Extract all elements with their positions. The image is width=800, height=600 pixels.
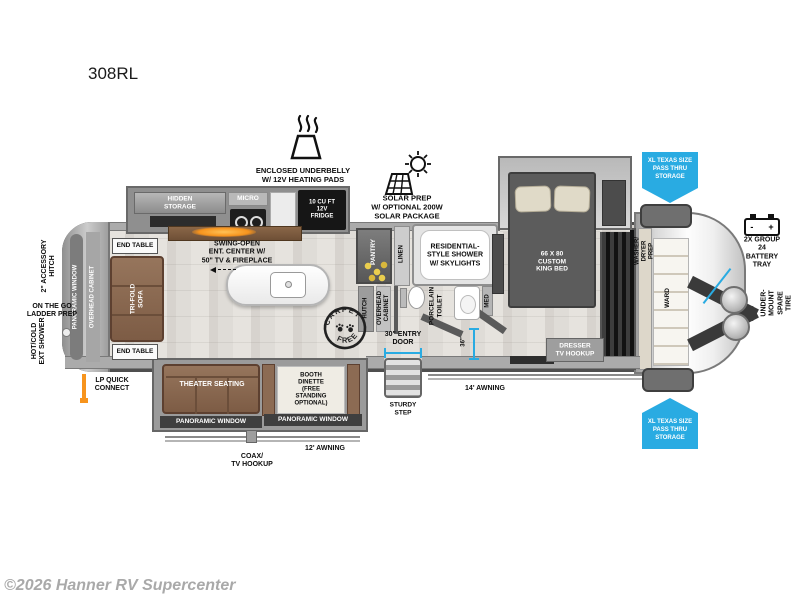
swing-arrow-line xyxy=(218,269,236,270)
door-width-dimension-line xyxy=(473,328,475,360)
louvered-wardrobe xyxy=(600,228,636,370)
swing-arrow-head xyxy=(210,267,216,273)
awning-14-line xyxy=(428,378,654,380)
pass-thru-door-top xyxy=(640,204,692,228)
entry-door-label: 30" ENTRY DOOR xyxy=(385,331,422,348)
underbelly-label: ENCLOSED UNDERBELLY W/ 12V HEATING PADS xyxy=(256,167,350,185)
battery-tray-label: 2X GROUP 24 BATTERY TRAY xyxy=(743,237,781,270)
dinette-bench xyxy=(262,364,275,416)
solar-prep-label: SOLAR PREP W/ OPTIONAL 200W SOLAR PACKAG… xyxy=(371,195,443,222)
sofa-seam xyxy=(112,314,162,316)
toilet-icon xyxy=(408,286,425,309)
wall-segment xyxy=(366,356,384,369)
end-table-top-label: END TABLE xyxy=(117,242,154,250)
pass-thru-callout-bottom: XL TEXAS SIZE PASS THRU STORAGE xyxy=(642,398,698,449)
pillow-icon xyxy=(515,185,552,212)
spare-tire-icon xyxy=(722,313,750,341)
pass-thru-callout-top-box: XL TEXAS SIZE PASS THRU STORAGE xyxy=(642,152,698,188)
bath-vanity xyxy=(454,286,480,320)
battery-terminal-icon xyxy=(750,214,756,218)
lp-quick-connect-label: LP QUICK CONNECT xyxy=(95,377,130,394)
awning-12-label: 12' AWNING xyxy=(305,445,345,453)
faucet-icon xyxy=(285,281,292,288)
awning-14-label: 14' AWNING xyxy=(465,385,505,393)
awning-14-line xyxy=(428,374,654,376)
pantry-label: PANTRY xyxy=(370,239,378,265)
microwave-label: MICRO xyxy=(237,195,259,203)
king-bed-label: 66 X 80 CUSTOM KING BED xyxy=(536,251,568,274)
rear-cabinet-label: OVERHEAD CABINET xyxy=(89,266,96,328)
ext-shower-port-icon xyxy=(62,328,71,337)
ext-shower-label: HOT/COLD EXT SHOWER xyxy=(31,317,48,364)
bath-wall xyxy=(394,286,398,334)
accessory-hitch-label: 2" ACCESSORY HITCH xyxy=(41,240,58,293)
arrow-down-icon xyxy=(642,188,698,203)
dresser-label: DRESSER TV HOOKUP xyxy=(556,342,595,357)
toilet-label: PORCELAIN TOILET xyxy=(428,287,443,325)
ward-label: WARD xyxy=(664,288,672,308)
entertainment-center-label: SWING-OPEN ENT. CENTER W/ 50" TV & FIREP… xyxy=(202,241,273,266)
pass-thru-bottom-label: XL TEXAS SIZE PASS THRU STORAGE xyxy=(648,419,692,442)
spare-tire-label: UNDER-MOUNT SPARE TIRE xyxy=(761,289,794,316)
seat-seam xyxy=(166,376,258,378)
lp-quick-connect-tip xyxy=(80,398,88,403)
dinette-bench xyxy=(347,364,360,416)
battery-icon: - + xyxy=(744,218,780,236)
dimension-tick xyxy=(469,358,479,360)
linen-label: LINEN xyxy=(398,245,405,263)
heating-pads-icon xyxy=(272,112,332,162)
awning-12-line xyxy=(165,436,360,438)
floorplan-canvas: 308RL ENCLOSED UNDERBELLY W/ 12V HEATING… xyxy=(0,0,800,600)
watermark: ©2026 Hanner RV Supercenter xyxy=(4,577,235,595)
swing-arrow-icon xyxy=(210,266,236,273)
entry-steps-icon xyxy=(384,358,422,398)
sofa-label: TRI-FOLD SOFA xyxy=(129,284,144,314)
sturdy-step-label: STURDY STEP xyxy=(390,401,417,416)
dimension-tick xyxy=(384,348,386,358)
rear-window-label: PANORAMIC WINDOW xyxy=(72,265,79,330)
toilet-tank xyxy=(400,288,407,308)
hutch-label: HUTCH xyxy=(362,298,369,319)
bedroom-window-right xyxy=(602,180,626,226)
battery-terminal-icon xyxy=(768,214,774,218)
theater-seating-label: THEATER SEATING xyxy=(179,381,244,389)
pass-thru-callout-bottom-box: XL TEXAS SIZE PASS THRU STORAGE xyxy=(642,413,698,449)
slide-window-right-label: PANORAMIC WINDOW xyxy=(278,416,348,424)
dinette-label: BOOTH DINETTE (FREE STANDING OPTIONAL) xyxy=(295,372,328,407)
dimension-tick xyxy=(420,348,422,358)
fridge-label: 10 CU FT 12V FRIDGE xyxy=(309,199,335,220)
entry-door-dimension-line xyxy=(384,352,422,354)
coax-label: COAX/ TV HOOKUP xyxy=(231,453,273,470)
shower-label: RESIDENTIAL- STYLE SHOWER W/ SKYLIGHTS xyxy=(427,244,483,269)
fireplace-glow-icon xyxy=(192,227,256,237)
pass-thru-door-bottom xyxy=(642,368,694,392)
pillow-icon xyxy=(554,185,591,212)
med-cabinet-label: MED xyxy=(484,294,491,307)
end-table-bottom-label: END TABLE xyxy=(117,348,154,356)
pass-thru-callout-top: XL TEXAS SIZE PASS THRU STORAGE xyxy=(642,152,698,203)
lp-quick-connect-icon xyxy=(82,374,86,398)
coax-hookup-icon xyxy=(246,430,257,443)
door-width-label: 36" xyxy=(460,337,467,347)
dimension-tick xyxy=(469,328,479,330)
washer-dryer-label: WASHER/ DRYER PREP xyxy=(634,237,655,265)
solar-prep-icon xyxy=(378,150,432,198)
page-title: 308RL xyxy=(88,64,138,84)
bedroom-window-left xyxy=(492,234,504,294)
slide-window-left-label: PANORAMIC WINDOW xyxy=(176,418,246,426)
vanity-sink-icon xyxy=(460,295,476,314)
hall-overhead-cabinet-label: OVERHEAD CABINET xyxy=(377,291,391,325)
arrow-up-icon xyxy=(642,398,698,413)
spare-tire-icon xyxy=(720,286,748,314)
pass-thru-top-label: XL TEXAS SIZE PASS THRU STORAGE xyxy=(648,158,692,181)
hidden-storage-label: HIDDEN STORAGE xyxy=(164,195,196,210)
awning-12-line xyxy=(165,440,360,442)
